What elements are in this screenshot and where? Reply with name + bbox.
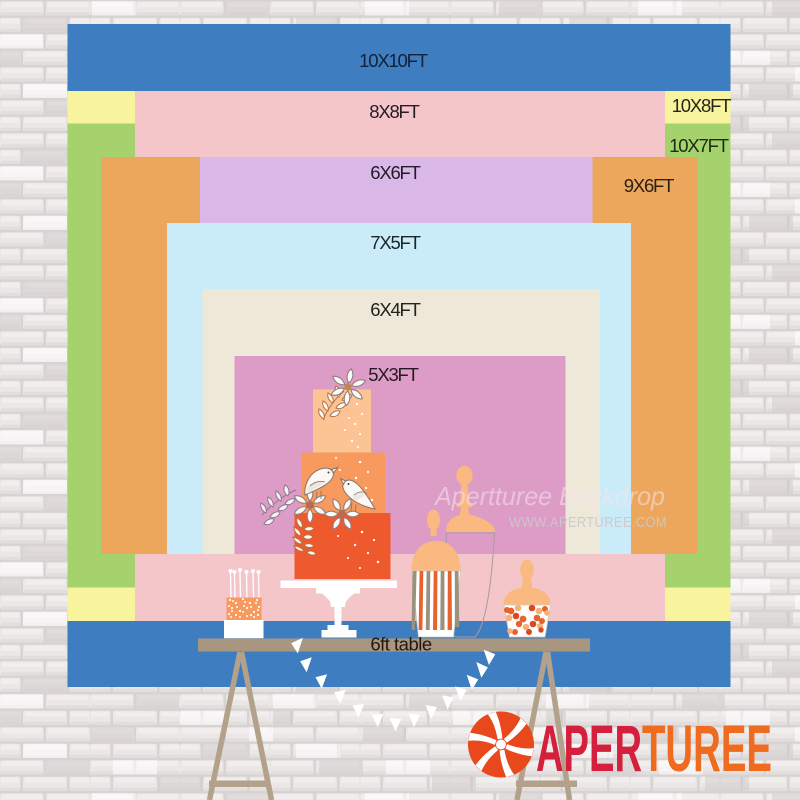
svg-text:5X3FT: 5X3FT xyxy=(368,364,418,385)
svg-text:6ft table: 6ft table xyxy=(370,634,432,655)
svg-text:9X6FT: 9X6FT xyxy=(624,175,674,196)
svg-text:APER: APER xyxy=(536,711,642,785)
svg-text:10X7FT: 10X7FT xyxy=(669,135,729,156)
svg-text:7X5FT: 7X5FT xyxy=(370,232,420,253)
svg-text:Apertturee Backdrop: Apertturee Backdrop xyxy=(433,481,665,511)
svg-text:6X4FT: 6X4FT xyxy=(370,299,420,320)
svg-text:6X6FT: 6X6FT xyxy=(370,162,420,183)
svg-text:10X8FT: 10X8FT xyxy=(672,95,732,116)
svg-text:WWW.APERTUREE.COM: WWW.APERTUREE.COM xyxy=(509,514,667,531)
svg-text:8X8FT: 8X8FT xyxy=(369,101,419,122)
svg-text:TUREE: TUREE xyxy=(642,711,772,785)
svg-text:10X10FT: 10X10FT xyxy=(359,50,428,71)
